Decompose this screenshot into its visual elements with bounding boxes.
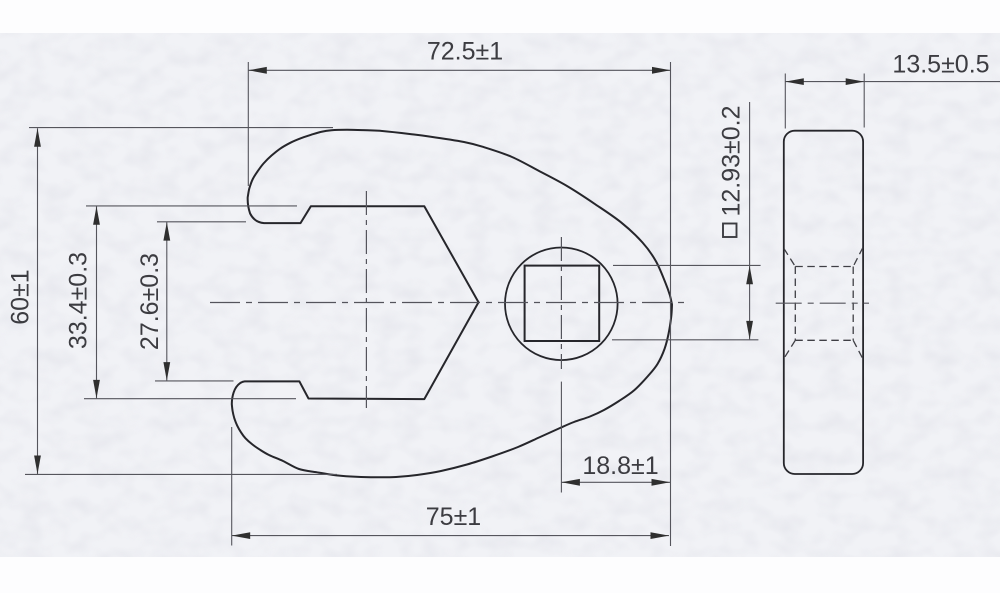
svg-text:60±1: 60±1 [7, 269, 35, 324]
svg-text:75±1: 75±1 [426, 503, 481, 531]
svg-text:72.5±1: 72.5±1 [427, 38, 503, 66]
svg-text:27.6±0.3: 27.6±0.3 [136, 253, 164, 350]
svg-text:33.4±0.3: 33.4±0.3 [65, 252, 93, 349]
svg-text:13.5±0.5: 13.5±0.5 [892, 51, 989, 79]
svg-text:18.8±1: 18.8±1 [582, 452, 658, 480]
svg-text:12.93±0.2: 12.93±0.2 [718, 105, 746, 216]
